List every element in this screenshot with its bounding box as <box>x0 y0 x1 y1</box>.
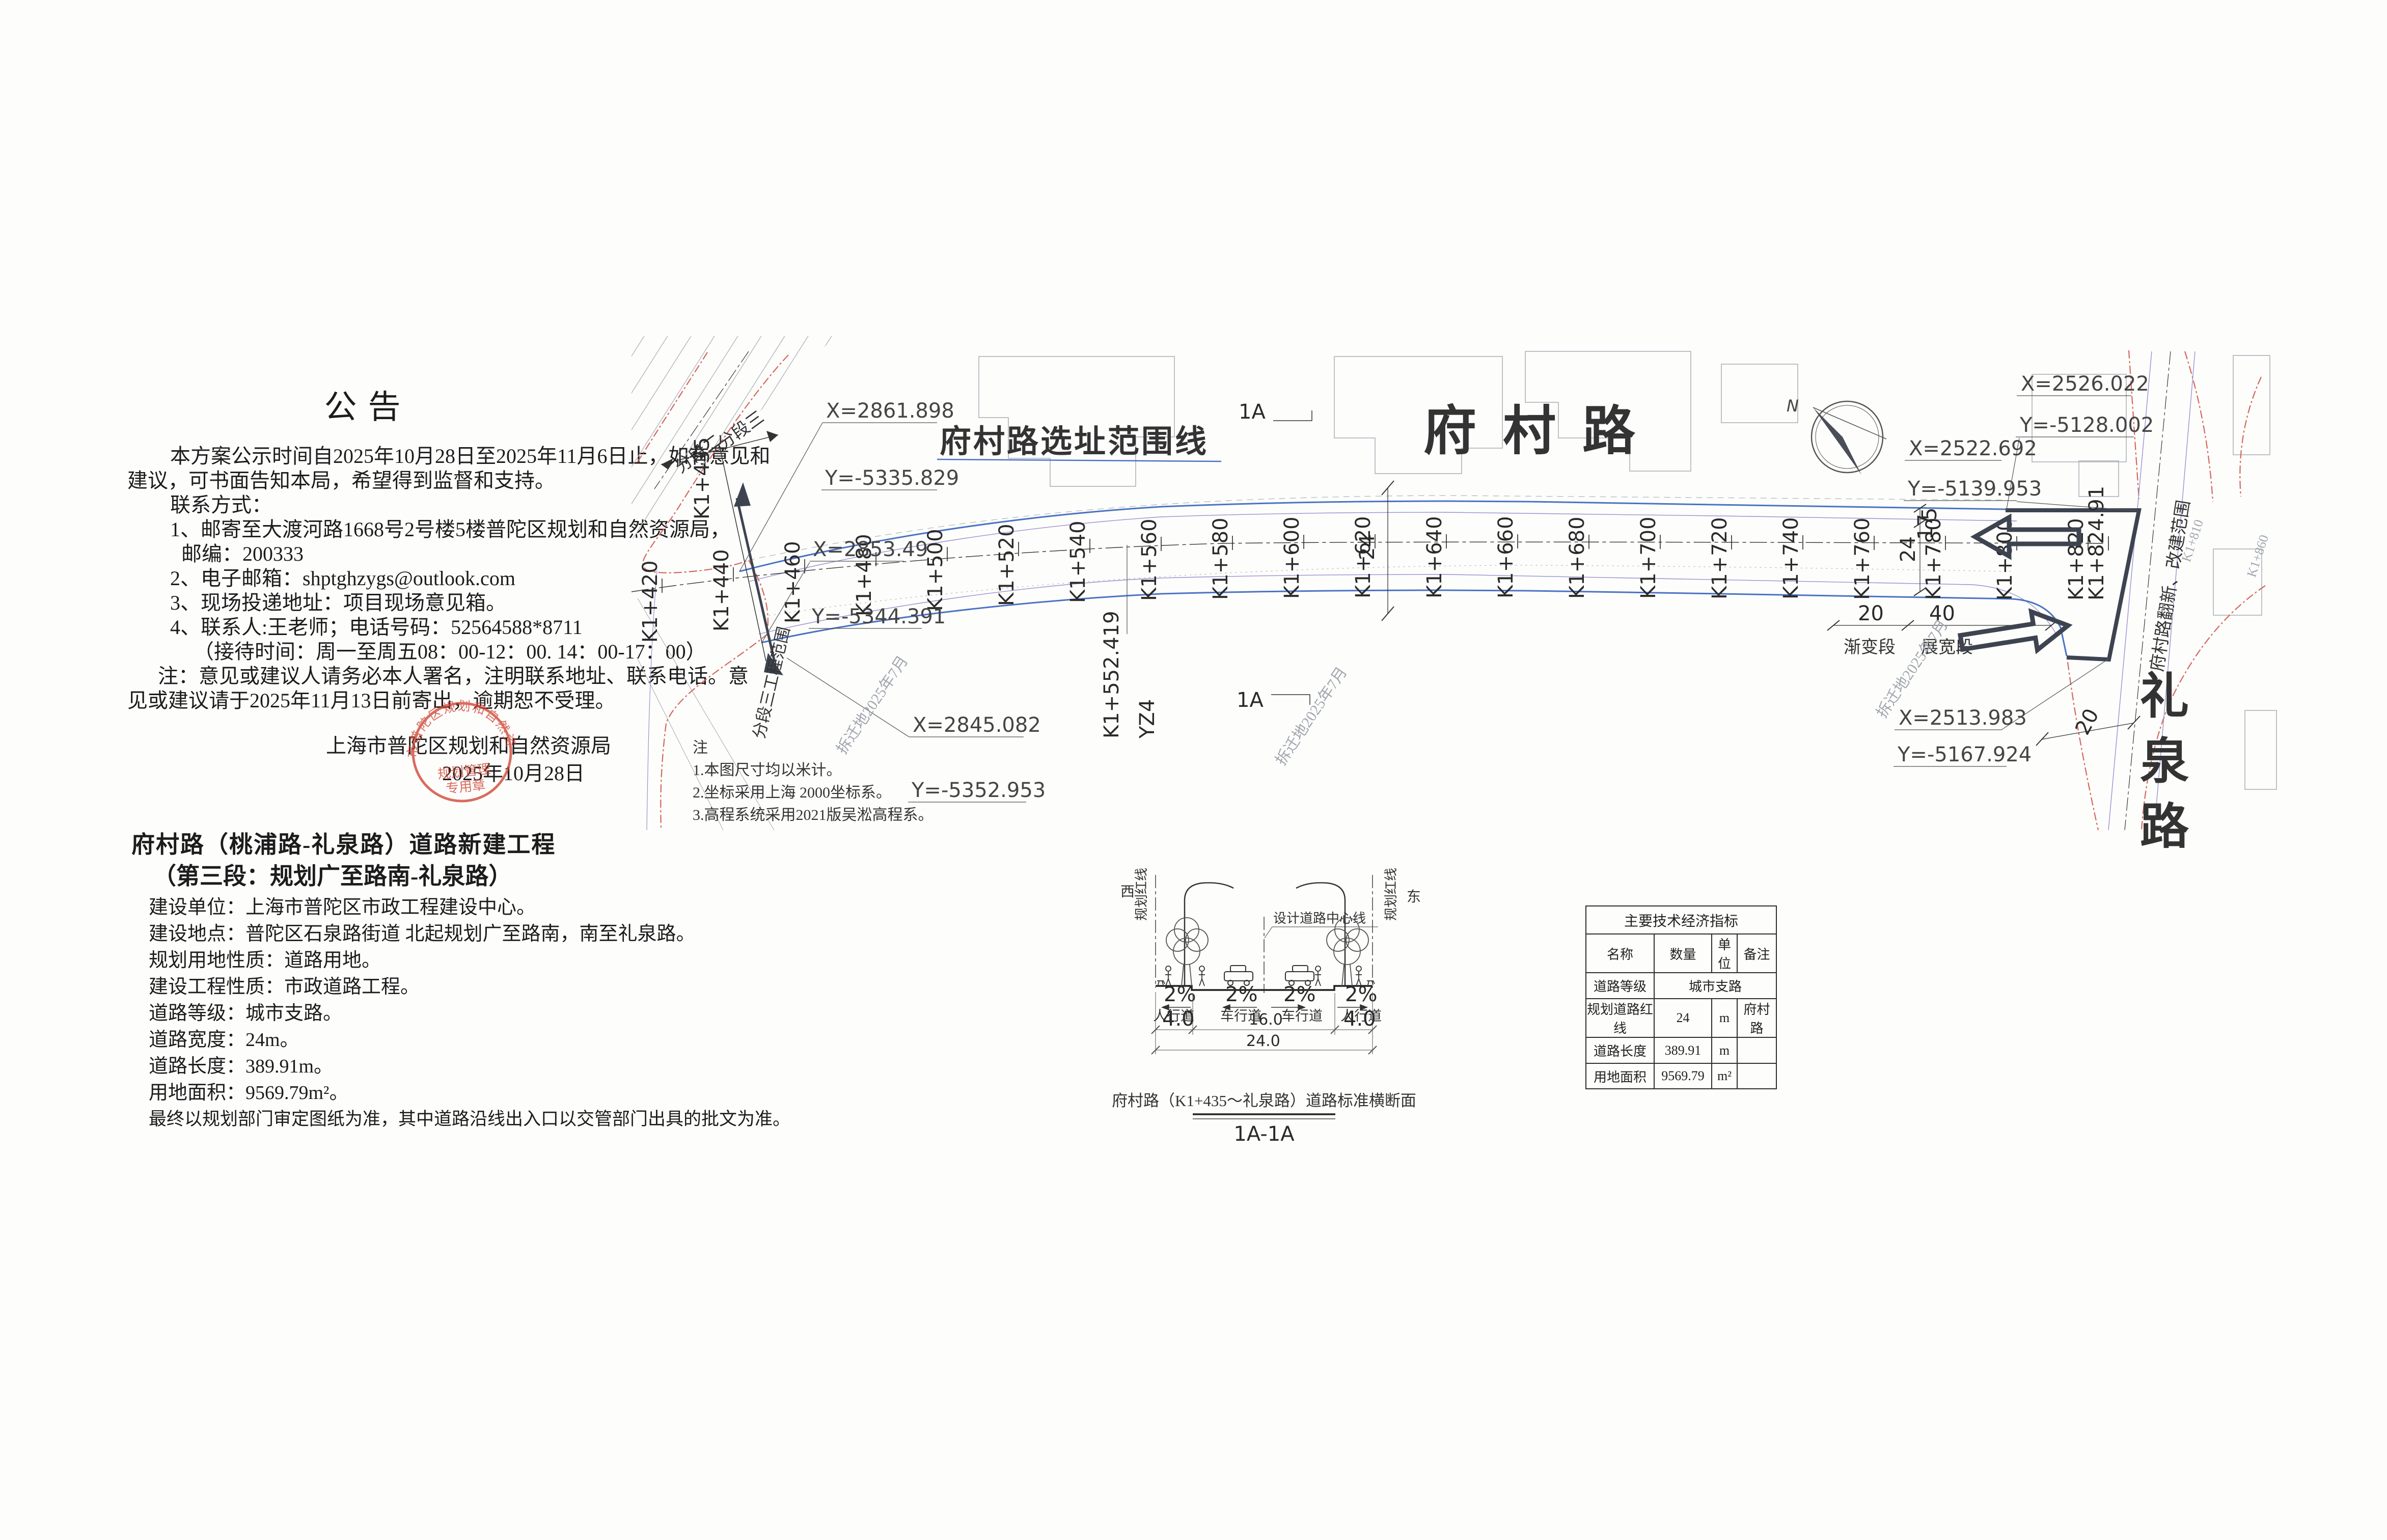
table-cell <box>1737 1037 1776 1063</box>
redline-label: 规划红线 <box>1134 868 1149 921</box>
coord-label: Y=-5128.002 <box>2019 414 2154 437</box>
coord-label: X=2861.898 <box>826 399 954 423</box>
segment-label: 渐变段 <box>1844 638 1896 657</box>
table-cell: 9569.79 <box>1654 1063 1712 1089</box>
section-ref: 1A-1A <box>1233 1122 1295 1146</box>
station-label: K1+520 <box>995 524 1019 606</box>
north-compass: N <box>1787 396 1886 475</box>
scanned-notice-page: 公告 本方案公示时间自2025年10月28日至2025年11月6日止，如有意见和… <box>0 0 2387 1540</box>
redline-label: 规划红线 <box>1384 868 1398 921</box>
map-notes: 注 1.本图尺寸均以米计。 2.坐标采用上海 2000坐标系。 3.高程系统采用… <box>693 739 934 823</box>
section-red-lines <box>1156 875 1373 993</box>
section-markers: 1A 1A 24 <box>1237 400 1394 712</box>
coord-label: Y=-5167.924 <box>1897 743 2032 766</box>
dim-label: 24 <box>1897 536 1920 562</box>
cross-section: 西 规划红线 规划红线 东 设计道路中心线 <box>1112 868 1421 1146</box>
note-line: 2.坐标采用上海 2000坐标系。 <box>693 784 891 801</box>
faint-station: K1+860 <box>2244 533 2271 579</box>
station-label: K1+600 <box>1280 516 1304 599</box>
coord-label: X=2522.692 <box>1909 437 2037 460</box>
table-cell: 道路等级 <box>1586 973 1654 999</box>
slope-label: 2% <box>1164 983 1196 1006</box>
station-label: YZ4 <box>1136 699 1159 739</box>
dim-value: 4.0 <box>1343 1007 1376 1031</box>
dim-label: 17 <box>1914 514 1937 540</box>
segment3-label: 分段三 <box>714 407 767 454</box>
table-cell: 规划道路红线 <box>1586 999 1654 1037</box>
station-label: K1+720 <box>1708 517 1732 599</box>
dim-value: 4.0 <box>1162 1007 1195 1031</box>
slope-label: 2% <box>1283 983 1315 1006</box>
coord-label: Y=-5335.829 <box>825 466 959 490</box>
lane-label: 车行道 <box>1281 1008 1323 1024</box>
coord-label: Y=-5139.953 <box>1907 477 2042 501</box>
note-line: 1.本图尺寸均以米计。 <box>693 762 842 779</box>
road-name-liquan: 礼 泉 路 <box>2140 669 2189 854</box>
trees <box>1166 918 1368 986</box>
coord-label: X=2845.082 <box>913 713 1041 737</box>
slope-labels: 2% 2% 2% 2% <box>1164 983 1377 1006</box>
section-title: 府村路（K1+435～礼泉路）道路标准横断面 <box>1112 1092 1416 1110</box>
coord-label: X=2526.022 <box>2021 372 2149 396</box>
station-label: K1+760 <box>1851 517 1874 600</box>
arrow-right-icon <box>1958 607 2071 662</box>
table-cell: m² <box>1712 1063 1737 1089</box>
section-label: 1A <box>1237 689 1264 712</box>
station-label: K1+680 <box>1566 516 1589 599</box>
table-cell: 24 <box>1654 999 1712 1037</box>
width-dim: 24 <box>1356 534 1379 560</box>
slope-label: 2% <box>1225 983 1257 1006</box>
site-plan-drawing: K1+420K1+440K1+460K1+480K1+500K1+520K1+5… <box>0 0 2387 1540</box>
coord-label: X=2853.49 <box>813 538 928 561</box>
east-label: 东 <box>1407 889 1421 905</box>
liquan-char: 路 <box>2140 800 2189 854</box>
col-header: 备注 <box>1737 934 1776 973</box>
table-title: 主要技术经济指标 <box>1586 906 1776 934</box>
station-label: K1+640 <box>1423 516 1446 598</box>
dim-value: 16.0 <box>1249 1011 1283 1029</box>
range-line-label: 府村路选址范围线 <box>940 424 1209 459</box>
station-label: K1+580 <box>1209 517 1232 600</box>
hatch-area <box>513 334 857 542</box>
note-line: 3.高程系统采用2021版吴淞高程系。 <box>693 807 934 823</box>
station-label: K1+660 <box>1494 516 1518 598</box>
station-label: K1+824.91 <box>2085 486 2108 600</box>
col-header: 单位 <box>1712 934 1737 973</box>
demolition-label: 拆迁地2025年7月 <box>1272 664 1350 768</box>
north-label: N <box>1787 396 1799 416</box>
coord-label: Y=-5352.953 <box>911 779 1046 802</box>
table-cell: m <box>1712 999 1737 1037</box>
station-label: K1+740 <box>1779 517 1803 599</box>
hatch-line <box>560 334 693 542</box>
table-cell: 城市支路 <box>1654 973 1776 999</box>
section-dim-values: 4.0 16.0 4.0 24.0 <box>1162 1007 1376 1050</box>
table-cell: 389.91 <box>1654 1037 1712 1063</box>
demolition-label: 拆迁地2025年7月 <box>1873 617 1951 721</box>
liquan-char: 礼 <box>2140 669 2189 724</box>
segment3-scope-label: 分段三工程范围 <box>750 625 793 740</box>
table-cell: 道路长度 <box>1586 1037 1654 1063</box>
coord-label: X=2513.983 <box>1899 706 2027 730</box>
tech-econ-table: 主要技术经济指标 名称 数量 单位 备注 道路等级 城市支路 规划道路红线 24… <box>1585 905 1777 1089</box>
demolition-label: 拆迁地2025年7月 <box>833 653 911 757</box>
table-cell <box>1737 1063 1776 1089</box>
dim-label: 20 <box>1858 602 1884 625</box>
west-label: 西 <box>1120 884 1135 900</box>
station-label: K1+540 <box>1066 520 1090 603</box>
table-cell: 府村路 <box>1737 999 1776 1037</box>
note-line: 注 <box>693 739 708 756</box>
road-name-fucun: 府村路 <box>1423 402 1662 461</box>
station-label: K1+552.419 <box>1100 611 1123 738</box>
col-header: 名称 <box>1586 934 1654 973</box>
station-label: K1+460 <box>781 541 805 623</box>
arrow-left-icon <box>1975 517 2079 556</box>
col-header: 数量 <box>1654 934 1712 973</box>
table-cell: m <box>1712 1037 1737 1063</box>
station-label: K1+700 <box>1637 516 1660 599</box>
dim-value: 24.0 <box>1246 1032 1280 1050</box>
station-label: K1+440 <box>710 549 733 631</box>
faint-annotations: 拆迁地2025年7月 拆迁地2025年7月 拆迁地2025年7月 K1+810 … <box>833 518 2271 768</box>
direction-arrows <box>1958 517 2079 662</box>
station-label: K1+560 <box>1138 518 1161 601</box>
table-cell: 用地面积 <box>1586 1063 1654 1089</box>
liquan-char: 泉 <box>2140 734 2189 789</box>
station-label: K1+420 <box>639 560 662 643</box>
dim-label: 20 <box>2071 705 2104 739</box>
hatch-line <box>513 334 646 542</box>
hatch-line <box>537 334 669 542</box>
street-lights <box>1185 883 1345 986</box>
section-label: 1A <box>1239 400 1266 424</box>
coord-label: Y=-5344.391 <box>811 605 946 628</box>
